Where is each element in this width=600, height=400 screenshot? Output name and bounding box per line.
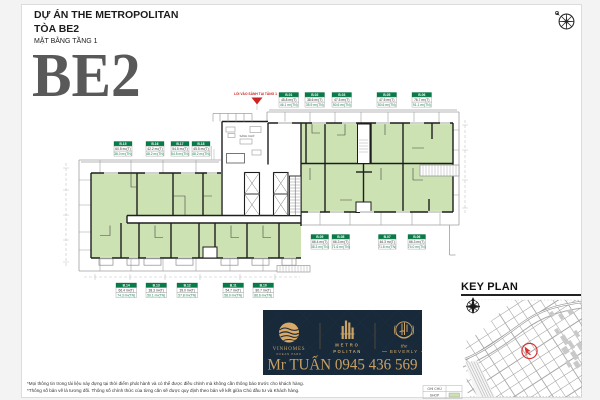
svg-text:VINHOMES: VINHOMES [273,347,306,352]
svg-text:47.5 m²(T): 47.5 m²(T) [379,98,394,102]
svg-text:B.17: B.17 [176,142,183,146]
svg-text:38.3 m²(TN): 38.3 m²(TN) [311,245,329,249]
svg-text:B.06: B.06 [413,235,420,239]
svg-text:42.2 m²(T): 42.2 m²(T) [147,147,162,151]
svg-text:57.8 m²(TN): 57.8 m²(TN) [178,293,196,297]
svg-text:B.14: B.14 [123,284,130,288]
svg-text:B.10: B.10 [260,284,267,288]
svg-text:B.05: B.05 [383,93,390,97]
svg-text:B.11: B.11 [230,284,237,288]
svg-text:METRO: METRO [335,343,360,348]
svg-text:GHI CHÚ: GHI CHÚ [427,386,442,391]
svg-text:38.6 m²(T): 38.6 m²(T) [307,98,322,102]
svg-text:SẢNH CHỜ: SẢNH CHỜ [240,133,256,138]
svg-text:B.13: B.13 [153,284,160,288]
svg-text:POLITAN: POLITAN [333,349,362,354]
svg-text:38.3 m²(T): 38.3 m²(T) [149,288,164,292]
svg-text:39.0 m²(T): 39.0 m²(T) [180,288,195,292]
svg-text:47.5 m²(T): 47.5 m²(T) [334,98,349,102]
svg-text:60.5 m²(T): 60.5 m²(T) [115,147,130,151]
svg-text:54.5 m²(TN): 54.5 m²(TN) [171,152,189,156]
svg-text:B.07: B.07 [384,235,391,239]
svg-text:LỐI VÀO SẢNH TẠI TẦNG 1: LỐI VÀO SẢNH TẠI TẦNG 1 [234,91,277,96]
svg-text:74.3 m²(TN): 74.3 m²(TN) [117,293,135,297]
svg-text:BEVERLY: BEVERLY [390,349,419,354]
svg-text:58.0 m²(TN): 58.0 m²(TN) [224,293,242,297]
svg-text:35.9 m²(TN): 35.9 m²(TN) [306,103,324,107]
svg-text:B.06: B.06 [418,93,425,97]
svg-text:50.6 m²(TN): 50.6 m²(TN) [378,103,396,107]
svg-text:B.12: B.12 [184,284,191,288]
svg-text:45.8 m²(T): 45.8 m²(T) [281,98,296,102]
svg-text:50.1 m²(TN): 50.1 m²(TN) [147,293,165,297]
svg-text:B.08: B.08 [337,235,344,239]
svg-text:76.7 m²(T): 76.7 m²(T) [414,98,429,102]
svg-text:B.09: B.09 [316,235,323,239]
svg-text:66.3 m²(T): 66.3 m²(T) [333,240,348,244]
svg-text:66.4 m²(T): 66.4 m²(T) [119,288,134,292]
svg-text:66.3 m²(T): 66.3 m²(T) [409,240,424,244]
svg-text:46.1 m²(TN): 46.1 m²(TN) [280,103,298,107]
svg-text:38.0 m²(TN): 38.0 m²(TN) [114,152,132,156]
svg-text:B.15: B.15 [119,142,126,146]
svg-text:48.2 m²(TN): 48.2 m²(TN) [192,152,210,156]
svg-text:B.03: B.03 [338,93,345,97]
svg-text:OCEAN PARK: OCEAN PARK [276,352,301,356]
svg-text:B.16: B.16 [151,142,158,146]
svg-text:B.01: B.01 [285,93,292,97]
svg-text:71.6 m²(TN): 71.6 m²(TN) [332,245,350,249]
svg-text:46.3 m²(T): 46.3 m²(T) [380,240,395,244]
svg-text:50.6 m²(TN): 50.6 m²(TN) [333,103,351,107]
svg-text:45.5 m²(T): 45.5 m²(T) [193,147,208,151]
svg-text:74.0 m²(TN): 74.0 m²(TN) [408,245,426,249]
svg-text:Mr TUẤN 0945 436 569: Mr TUẤN 0945 436 569 [268,357,418,374]
svg-text:SHOP: SHOP [430,394,440,398]
svg-text:54.5 m²(T): 54.5 m²(T) [172,147,187,151]
svg-text:B.02: B.02 [311,93,318,97]
svg-text:71.6 m²(TN): 71.6 m²(TN) [378,245,396,249]
svg-text:86.6 m²(TN): 86.6 m²(TN) [254,293,272,297]
svg-text:66.4 m²(T): 66.4 m²(T) [312,240,327,244]
svg-text:91.1 m²(TN): 91.1 m²(TN) [413,103,431,107]
svg-text:80.7 m²(T): 80.7 m²(T) [256,288,271,292]
svg-text:B.18: B.18 [197,142,204,146]
svg-text:54.7 m²(T): 54.7 m²(T) [226,288,241,292]
svg-text:48.2 m²(TN): 48.2 m²(TN) [146,152,164,156]
